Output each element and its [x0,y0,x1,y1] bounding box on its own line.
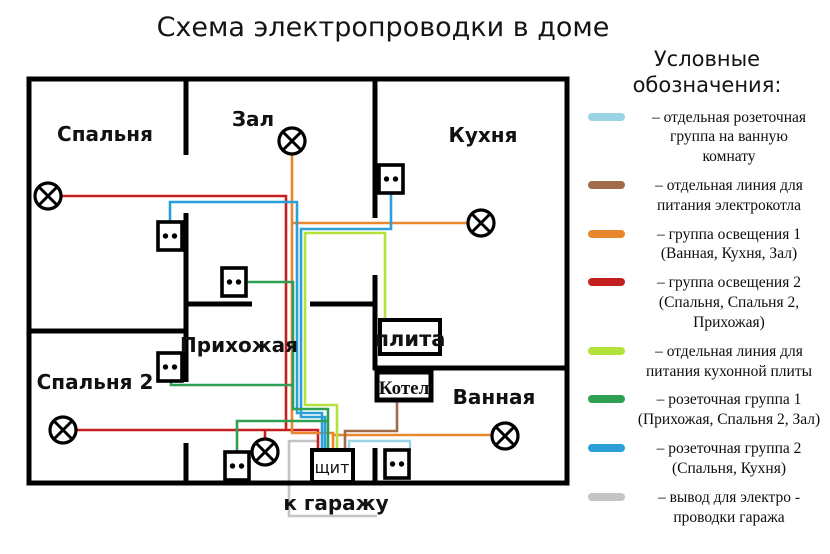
garage-label: к гаражу [283,491,388,515]
legend: Условные обозначения: – отдельная розето… [588,46,826,536]
wire-lighting-group-2 [76,430,318,452]
stove-label: плита [375,327,446,351]
legend-item-socket-group-2: – розеточная группа 2 (Спальня, Кухня) [588,439,826,479]
room-label-hallway: Прихожая [180,333,298,357]
legend-label-socket-group-2: – розеточная группа 2 (Спальня, Кухня) [632,439,826,479]
room-label-bedroom2: Спальня 2 [37,370,154,394]
legend-swatch-lighting-group-2 [588,278,625,286]
wire-socket-group-1 [171,382,293,385]
room-label-hall: Зал [232,107,274,131]
lamp-icon-hallway [252,439,278,465]
socket-icon-hallway [225,452,249,480]
wire-boiler-line [345,400,397,452]
lamp-icon-bedroom [35,183,61,209]
lamp-icon-bathroom [492,423,518,449]
legend-item-socket-group-1: – розеточная группа 1 (Прихожая, Спальня… [588,390,826,430]
legend-label-bathroom-socket-line: – отдельная розеточная группа на ванную … [632,108,826,167]
legend-swatch-stove-line [588,347,625,355]
socket-icon-kitchen [379,165,403,193]
legend-label-boiler-line: – отдельная линия для питания электрокот… [632,176,826,216]
legend-label-socket-group-1: – розеточная группа 1 (Прихожая, Спальня… [632,390,826,430]
legend-label-lighting-group-1: – группа освещения 1 (Ванная, Кухня, Зал… [632,225,826,265]
legend-swatch-boiler-line [588,181,625,189]
boiler-box: Котел [377,372,431,400]
legend-swatch-socket-group-1 [588,395,625,403]
legend-item-lighting-group-2: – группа освещения 2 (Спальня, Спальня 2… [588,273,826,332]
legend-swatch-socket-group-2 [588,444,625,452]
boiler-label: Котел [379,378,430,399]
room-label-bedroom: Спальня [57,122,153,146]
lamp-icon-kitchen [468,210,494,236]
socket-icon-bathroom [385,450,409,478]
legend-item-stove-line: – отдельная линия для питания кухонной п… [588,342,826,382]
room-label-kitchen: Кухня [449,123,518,147]
lamp-icon-hall [279,128,305,154]
socket-icon-hall [222,268,246,296]
legend-swatch-lighting-group-1 [588,230,625,238]
legend-item-bathroom-socket-line: – отдельная розеточная группа на ванную … [588,108,826,167]
panel-label: щит [315,458,350,477]
socket-icon-bedroom [158,222,182,250]
legend-swatch-bathroom-socket-line [588,113,625,121]
stove-box: плита [375,320,446,354]
panel-box: щит [312,450,353,482]
wire-socket-group-2 [170,202,322,452]
legend-item-boiler-line: – отдельная линия для питания электрокот… [588,176,826,216]
room-label-bathroom: Ванная [453,385,536,409]
legend-label-stove-line: – отдельная линия для питания кухонной п… [632,342,826,382]
legend-label-lighting-group-2: – группа освещения 2 (Спальня, Спальня 2… [632,273,826,332]
legend-item-garage-line: – вывод для электро - проводки гаража [588,488,826,528]
legend-title: Условные обозначения: [588,46,826,99]
legend-label-garage-line: – вывод для электро - проводки гаража [632,488,826,528]
lamp-icon-bedroom2 [50,417,76,443]
wire-socket-group-1 [248,282,328,452]
legend-item-lighting-group-1: – группа освещения 1 (Ванная, Кухня, Зал… [588,225,826,265]
socket-icon-bedroom2 [158,353,182,381]
wire-socket-group-1 [237,421,328,452]
legend-items: – отдельная розеточная группа на ванную … [588,108,826,528]
legend-swatch-garage-line [588,493,625,501]
